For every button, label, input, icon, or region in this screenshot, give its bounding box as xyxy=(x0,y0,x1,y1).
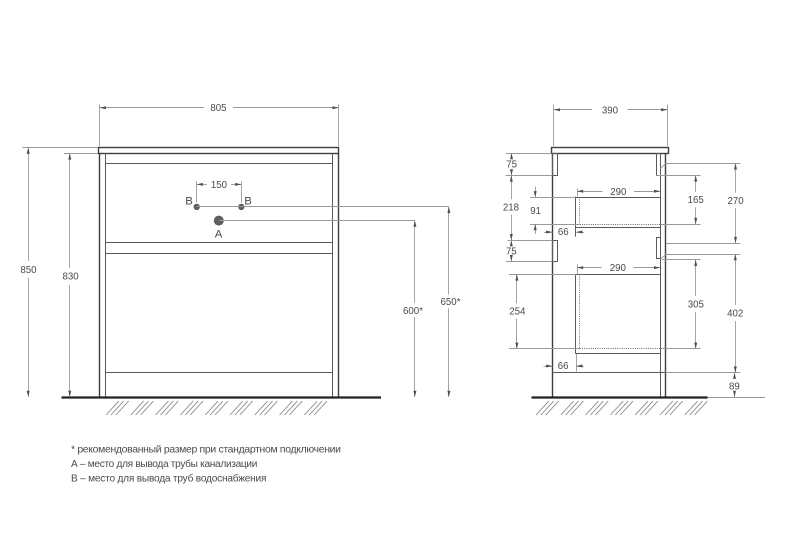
svg-text:600*: 600* xyxy=(403,306,423,317)
svg-text:165: 165 xyxy=(688,195,704,206)
svg-text:390: 390 xyxy=(602,105,619,116)
svg-text:66: 66 xyxy=(558,361,569,372)
svg-text:75: 75 xyxy=(506,246,517,257)
svg-text:402: 402 xyxy=(727,308,743,319)
svg-text:650*: 650* xyxy=(441,297,461,308)
svg-text:218: 218 xyxy=(503,202,519,213)
svg-text:91: 91 xyxy=(530,206,541,217)
svg-text:254: 254 xyxy=(509,306,526,317)
svg-text:850: 850 xyxy=(20,265,37,276)
svg-text:* рекомендованный размер при с: * рекомендованный размер при стандартном… xyxy=(71,445,341,456)
svg-text:830: 830 xyxy=(63,272,80,283)
svg-text:150: 150 xyxy=(211,180,228,191)
svg-text:A: A xyxy=(215,229,223,241)
svg-text:B: B xyxy=(185,196,193,208)
svg-text:805: 805 xyxy=(210,103,226,114)
svg-text:290: 290 xyxy=(610,263,627,274)
svg-text:270: 270 xyxy=(728,196,745,207)
svg-text:89: 89 xyxy=(729,381,740,392)
svg-text:А – место для вывода трубы кан: А – место для вывода трубы канализации xyxy=(71,458,257,470)
svg-text:В – место для вывода труб водо: В – место для вывода труб водоснабжения xyxy=(71,473,266,485)
svg-text:66: 66 xyxy=(558,227,569,238)
svg-text:305: 305 xyxy=(688,299,704,310)
svg-text:75: 75 xyxy=(506,160,517,171)
svg-text:290: 290 xyxy=(610,187,627,198)
svg-text:B: B xyxy=(244,196,252,208)
